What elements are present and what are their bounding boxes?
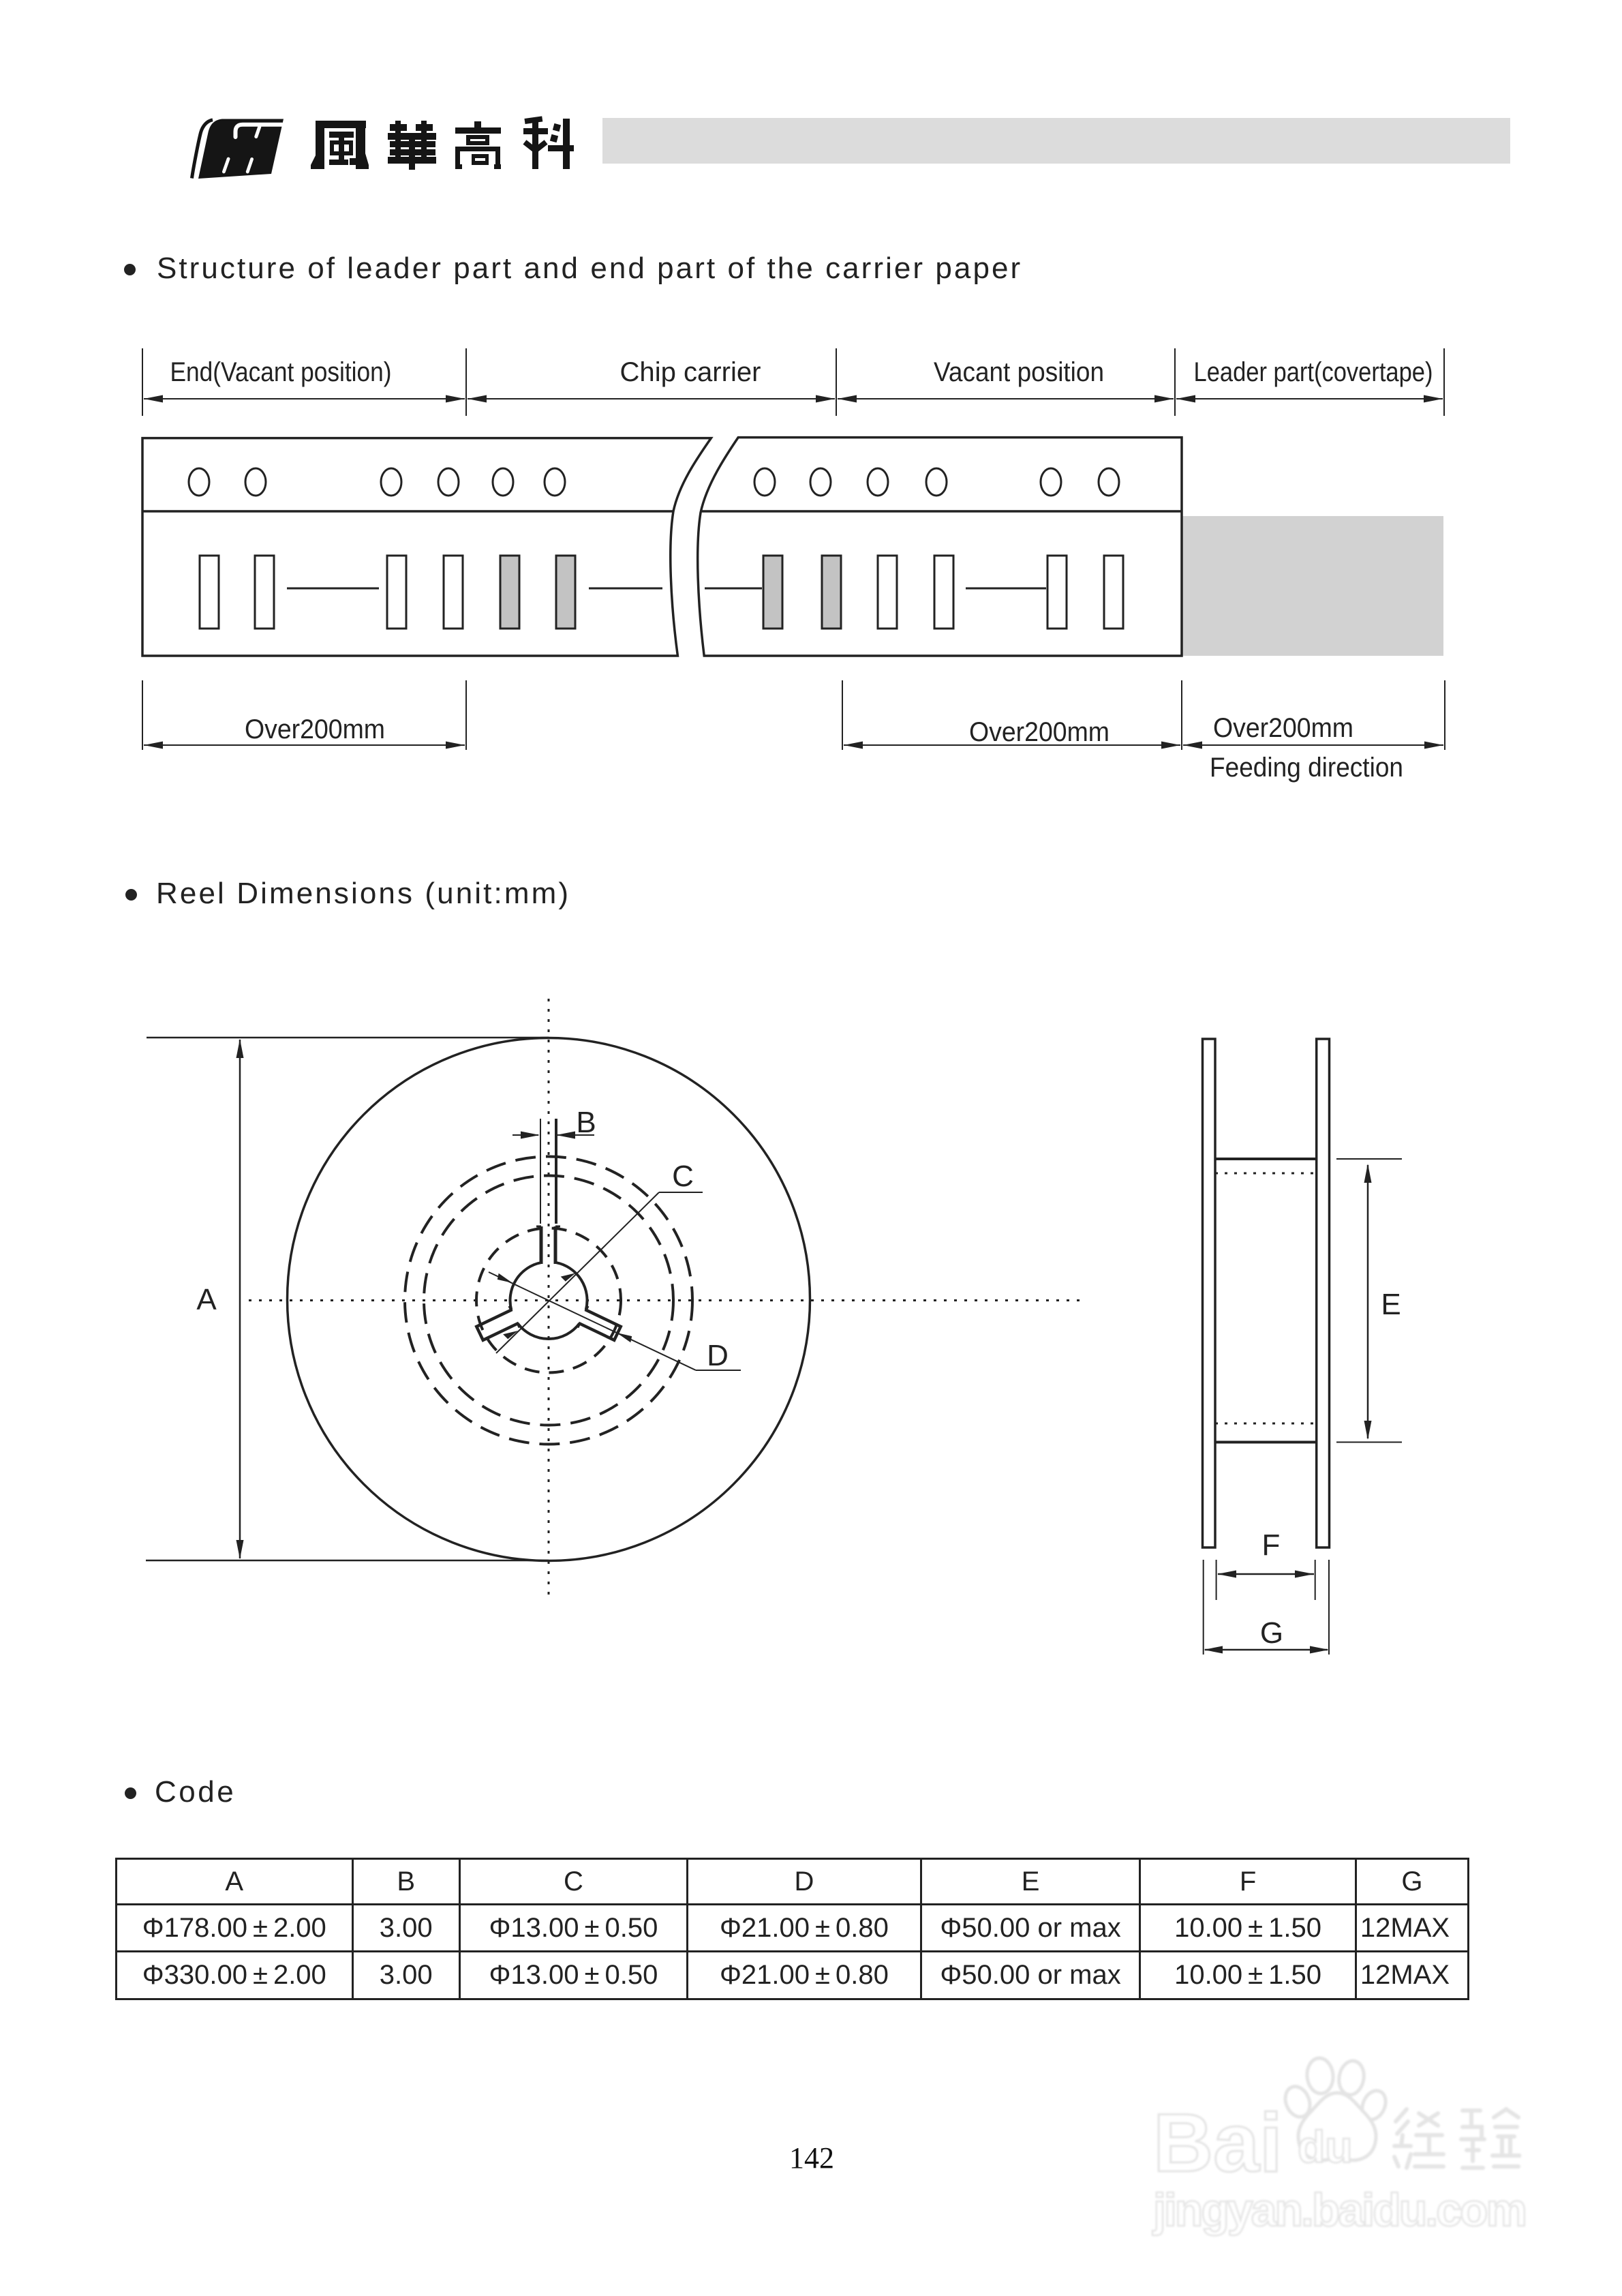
svg-text:End(Vacant position): End(Vacant position) — [170, 357, 392, 387]
svg-text:D: D — [707, 1339, 729, 1372]
svg-text:C: C — [672, 1160, 694, 1193]
svg-text:Chip carrier: Chip carrier — [620, 357, 761, 387]
svg-text:Feeding direction: Feeding direction — [1210, 753, 1403, 783]
svg-text:du: du — [1298, 2121, 1353, 2172]
svg-text:Over200mm: Over200mm — [1213, 713, 1353, 743]
svg-text:Vacant position: Vacant position — [934, 357, 1104, 387]
svg-text:Leader part(covertape): Leader part(covertape) — [1194, 357, 1433, 387]
svg-text:E: E — [1381, 1288, 1401, 1321]
svg-text:B: B — [576, 1106, 596, 1139]
svg-text:A: A — [196, 1283, 217, 1316]
svg-text:Over200mm: Over200mm — [245, 714, 385, 744]
svg-text:F: F — [1262, 1528, 1281, 1562]
svg-text:Over200mm: Over200mm — [969, 717, 1110, 747]
svg-text:G: G — [1260, 1616, 1283, 1650]
